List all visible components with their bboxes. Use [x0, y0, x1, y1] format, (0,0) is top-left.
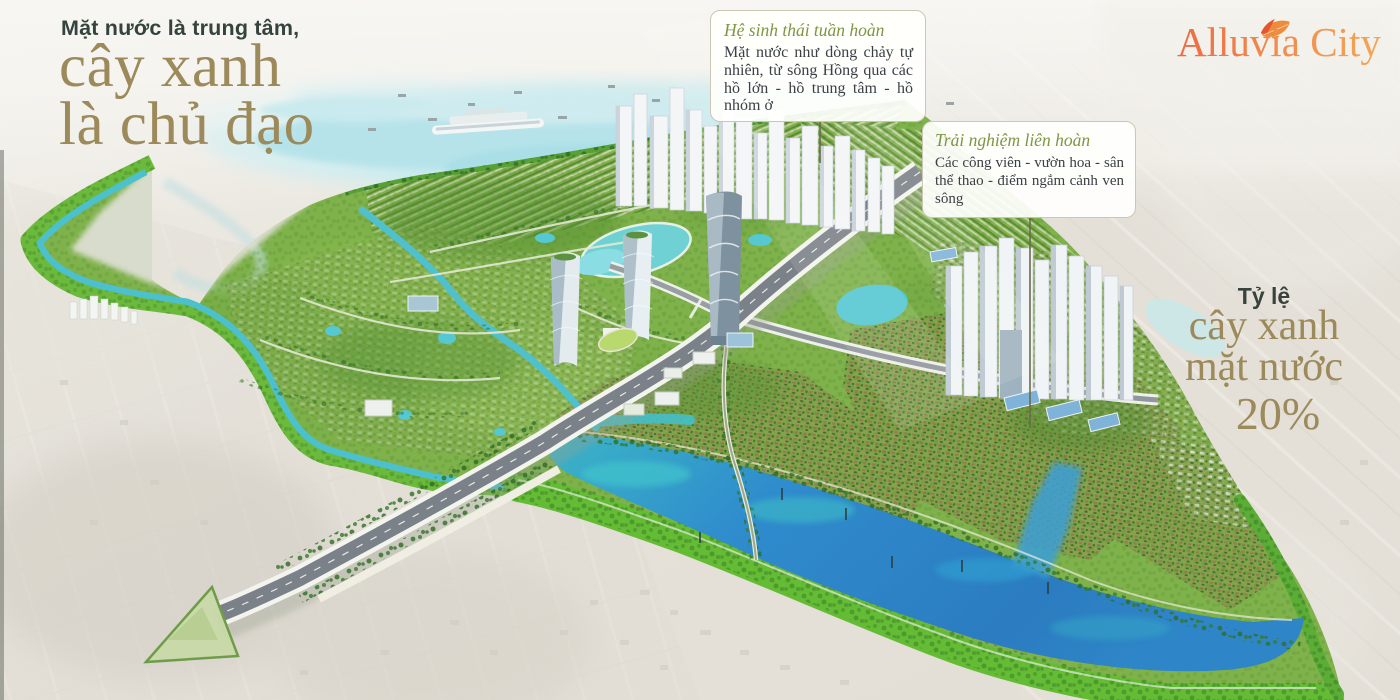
svg-text:Alluvia City: Alluvia City	[1177, 19, 1381, 65]
